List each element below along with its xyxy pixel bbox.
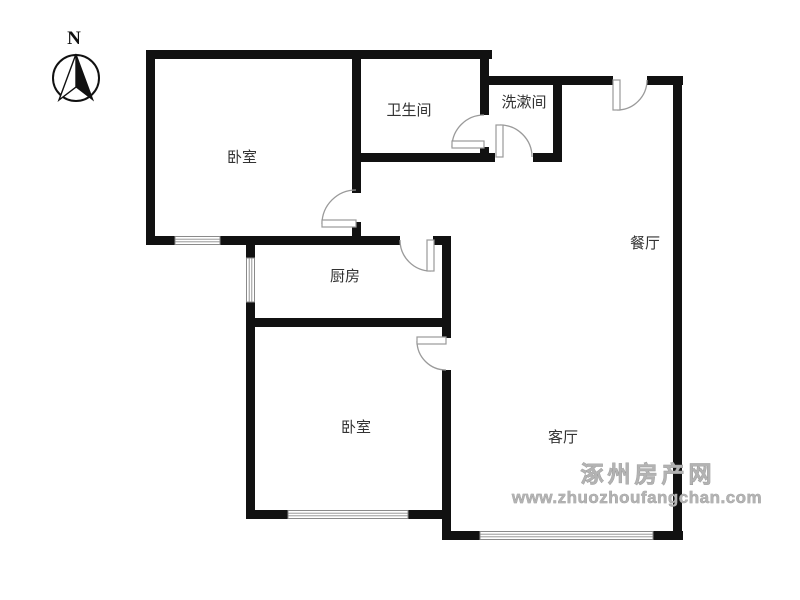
room-label-bathroom: 卫生间: [386, 102, 431, 119]
room-label-bedroom-top: 卧室: [227, 149, 257, 166]
watermark-site-name: 涿州房产网: [581, 461, 716, 487]
room-label-living-room: 客厅: [548, 429, 578, 446]
wall-kitchen-bedroom2-left: [246, 302, 255, 519]
wall-bedroom2-right-lower: [442, 370, 451, 540]
wall-kitchen-right: [442, 236, 451, 338]
wall-top-left: [146, 50, 492, 59]
window-kitchen: [247, 258, 255, 302]
wall-kitchen-bottom: [246, 318, 450, 327]
watermark: 涿州房产网 www.zhuozhoufangchan.com: [511, 461, 762, 507]
wall-bath-wash-divider-lower: [480, 147, 489, 162]
window-living: [480, 532, 653, 540]
room-label-dining-room: 餐厅: [630, 235, 660, 252]
watermark-site-url: www.zhuozhoufangchan.com: [511, 488, 762, 507]
wall-washroom-right: [553, 76, 562, 162]
compass: N: [53, 28, 99, 101]
wall-bedroom1-right-upper: [352, 50, 361, 193]
window-bedroom2: [288, 511, 408, 519]
door-washroom: [496, 125, 532, 157]
door-kitchen: [400, 240, 434, 271]
window-bedroom1: [175, 237, 220, 245]
wall-top-middle: [480, 76, 613, 85]
room-label-kitchen: 厨房: [330, 268, 360, 285]
door-bathroom: [452, 115, 484, 148]
door-entry: [613, 80, 647, 110]
room-label-bedroom-bottom: 卧室: [341, 419, 371, 436]
room-label-washroom: 洗漱间: [501, 94, 546, 111]
wall-kitchen-left-upper: [246, 236, 255, 258]
wall-bath-wash-divider-upper: [480, 50, 489, 115]
door-bedroom2: [417, 337, 446, 370]
wall-bath-bottom: [352, 153, 495, 162]
floor-plan: 卧室 卫生间 洗漱间 餐厅 厨房 卧室 客厅 N 涿州房产网 www.zhuoz…: [0, 0, 800, 600]
door-bedroom1: [322, 190, 356, 227]
compass-north-label: N: [67, 28, 81, 49]
wall-left-outer: [146, 50, 155, 245]
floor-plan-drawing: 卧室 卫生间 洗漱间 餐厅 厨房 卧室 客厅 N 涿州房产网 www.zhuoz…: [0, 0, 800, 600]
